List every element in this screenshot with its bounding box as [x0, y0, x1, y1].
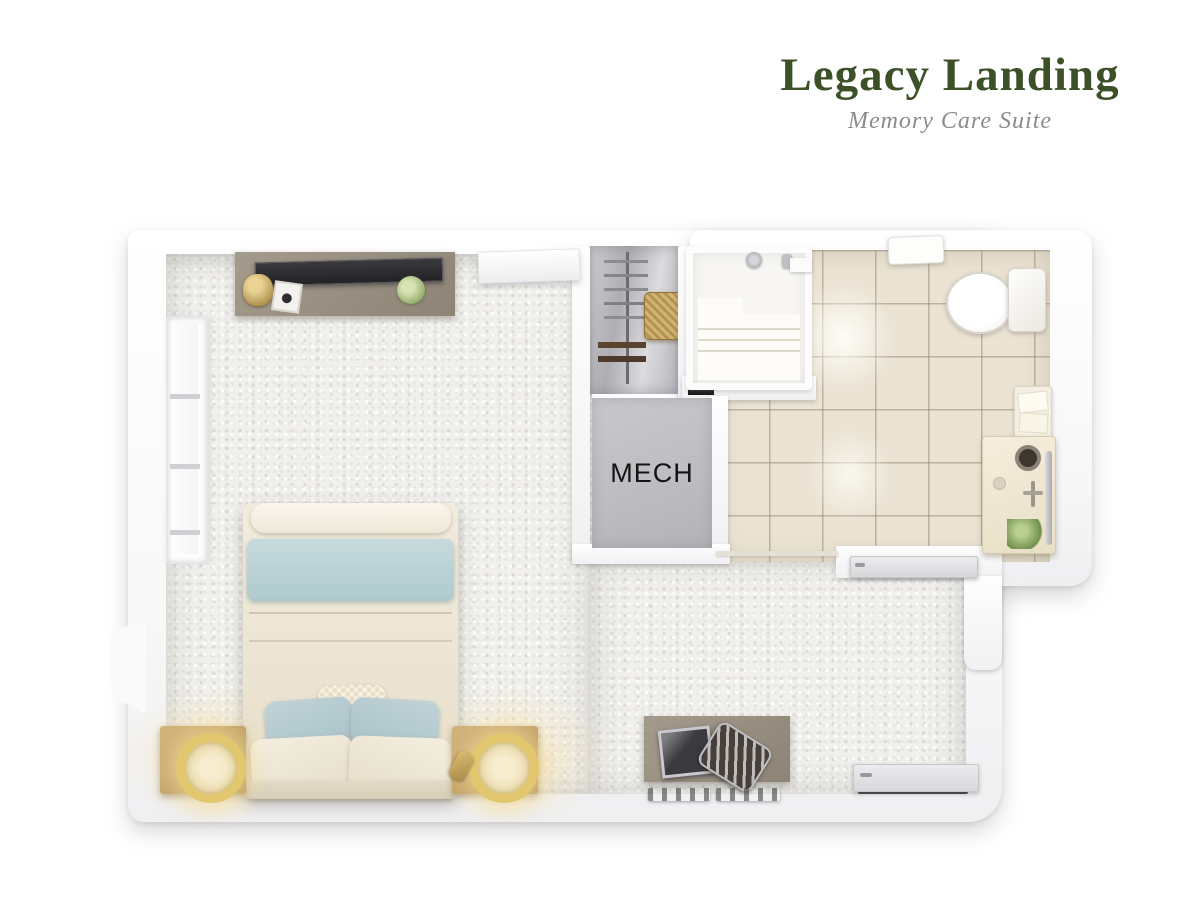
door-handle-icon	[855, 563, 865, 567]
soap-dish	[993, 477, 1006, 490]
nightstand-right	[452, 726, 538, 794]
closet	[588, 246, 680, 394]
window-mullion	[170, 394, 200, 399]
mechanical-room: MECH	[592, 398, 712, 548]
folded-towel	[1018, 412, 1048, 433]
closet-shelf-bar	[598, 356, 646, 362]
wall-mech-right	[710, 396, 728, 558]
wall-shelf	[477, 248, 580, 284]
throw-blanket	[247, 539, 454, 601]
closet-shelf-bar	[598, 342, 646, 348]
glass-plant-decor	[397, 276, 425, 304]
photo-frame-decor	[271, 280, 303, 314]
shower-soap-shelf	[790, 258, 812, 272]
memory-care-suite-flyer: Legacy Landing Memory Care Suite	[0, 0, 1200, 900]
window-mullion	[170, 530, 200, 535]
table-lamp-icon	[176, 733, 246, 803]
vanity-sink	[982, 436, 1056, 554]
window	[166, 316, 208, 564]
bathroom-ceiling-light	[888, 235, 945, 265]
dresser	[235, 252, 455, 316]
nightstand-left	[160, 726, 246, 794]
bathroom-door	[850, 556, 978, 578]
desk-drawer	[648, 788, 710, 801]
wall-entry-stub	[964, 576, 1002, 670]
floor-plan: MECH	[0, 0, 1200, 900]
bed	[243, 503, 458, 799]
toilet	[946, 268, 1044, 332]
hanger	[604, 316, 648, 319]
duvet-fold-line	[249, 640, 452, 642]
desk	[644, 716, 790, 796]
bathroom-doorway-threshold	[716, 551, 838, 556]
shower-head-icon	[746, 252, 762, 268]
duvet-fold-line	[249, 612, 452, 614]
entry-door	[853, 764, 979, 792]
toilet-bowl	[946, 272, 1014, 334]
faucet-bar	[1023, 491, 1043, 495]
toilet-tank	[1008, 268, 1046, 332]
hanger	[604, 288, 648, 291]
desk-drawer	[716, 788, 780, 801]
bed-foot-roll	[251, 503, 451, 533]
shower-bench	[698, 298, 800, 380]
gold-decor	[243, 274, 273, 306]
window-pane	[172, 322, 198, 554]
hanger	[604, 274, 648, 277]
folded-towel	[1017, 390, 1049, 413]
faucet-icon	[1023, 481, 1043, 507]
mech-room-label: MECH	[610, 458, 694, 489]
grab-rail	[1045, 451, 1052, 545]
headboard	[247, 781, 453, 799]
towel-shelf	[1014, 386, 1052, 440]
sink-drain-icon	[1015, 445, 1041, 471]
vanity-plant	[1007, 519, 1043, 549]
window-mullion	[170, 464, 200, 469]
hanger	[604, 302, 648, 305]
door-handle-icon	[860, 773, 872, 777]
wall-closet-left	[572, 246, 590, 560]
hanger	[604, 260, 648, 263]
table-lamp-icon	[469, 733, 539, 803]
